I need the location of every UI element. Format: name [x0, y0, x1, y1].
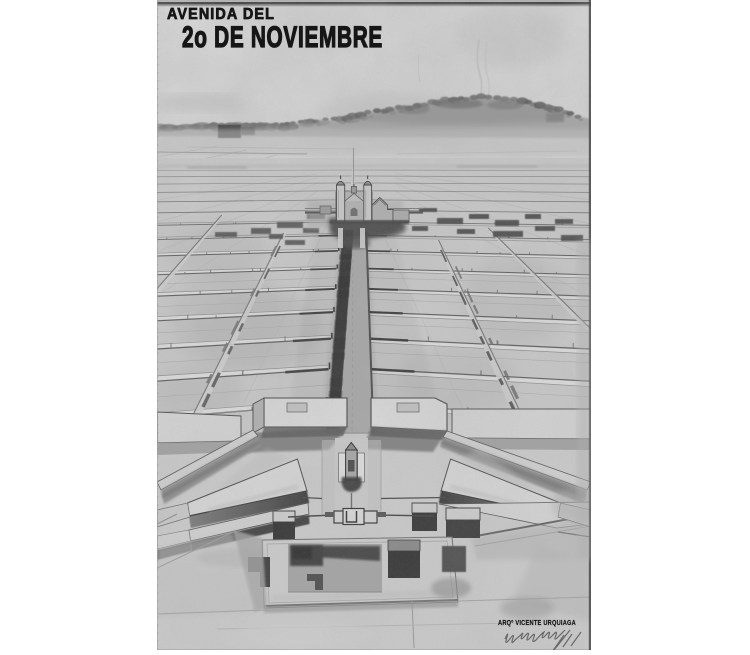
svg-text:2o DE NOVIEMBRE: 2o DE NOVIEMBRE — [182, 21, 383, 54]
svg-text:ARQº VICENTE URQUIAGA: ARQº VICENTE URQUIAGA — [498, 618, 576, 627]
